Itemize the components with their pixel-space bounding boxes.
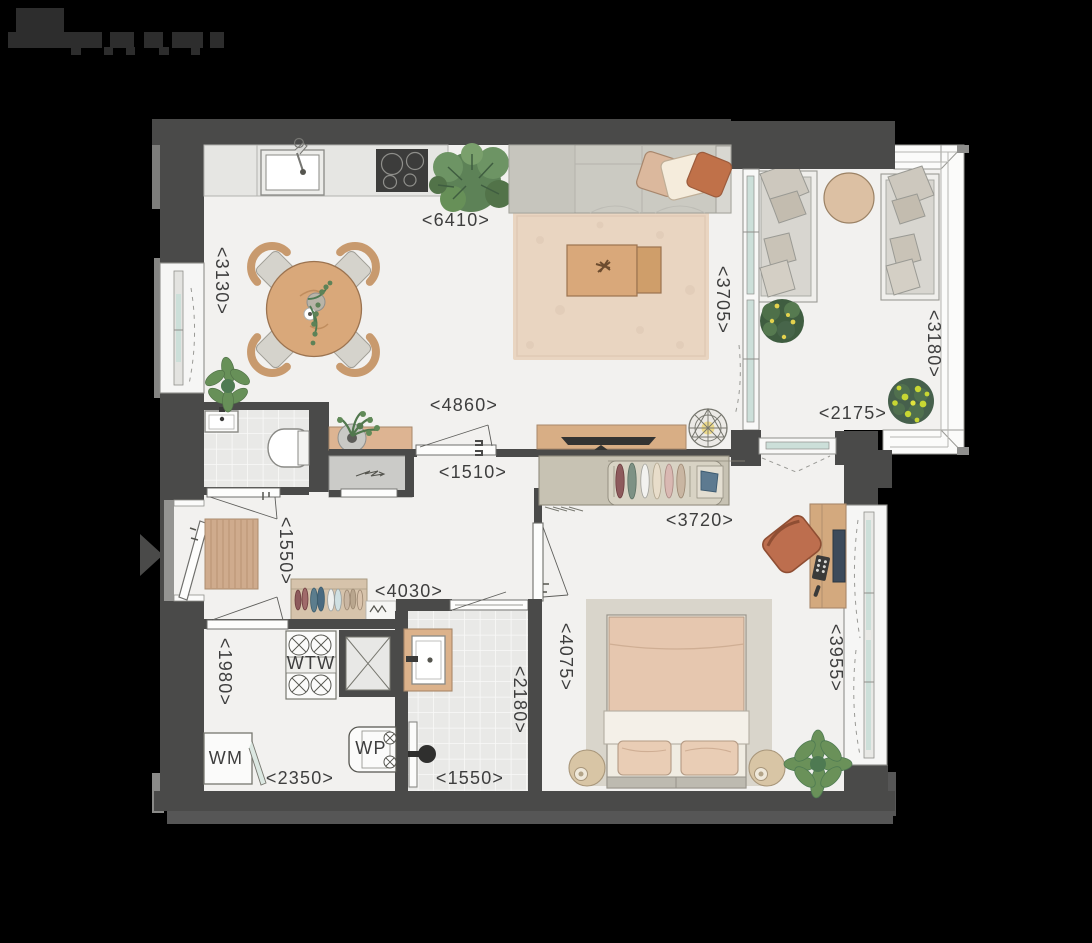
svg-text:<2175>: <2175> bbox=[819, 403, 887, 423]
svg-text:<1510>: <1510> bbox=[439, 462, 507, 482]
svg-text:WM: WM bbox=[209, 748, 243, 768]
svg-text:<3955>: <3955> bbox=[826, 624, 846, 692]
svg-text:<6410>: <6410> bbox=[422, 210, 490, 230]
svg-text:<4860>: <4860> bbox=[430, 395, 498, 415]
svg-text:<3705>: <3705> bbox=[713, 266, 733, 334]
svg-text:<2180>: <2180> bbox=[510, 666, 530, 734]
svg-text:<3180>: <3180> bbox=[924, 310, 944, 378]
svg-text:<4075>: <4075> bbox=[556, 623, 576, 691]
svg-text:<3130>: <3130> bbox=[212, 247, 232, 315]
svg-text:<3720>: <3720> bbox=[666, 510, 734, 530]
svg-text:<2350>: <2350> bbox=[266, 768, 334, 788]
svg-text:<1550>: <1550> bbox=[276, 517, 296, 585]
svg-text:<4030>: <4030> bbox=[375, 581, 443, 601]
svg-text:<1550>: <1550> bbox=[436, 768, 504, 788]
svg-text:WP: WP bbox=[355, 738, 386, 758]
svg-text:<1980>: <1980> bbox=[215, 638, 235, 706]
svg-text:WTW: WTW bbox=[287, 653, 336, 673]
